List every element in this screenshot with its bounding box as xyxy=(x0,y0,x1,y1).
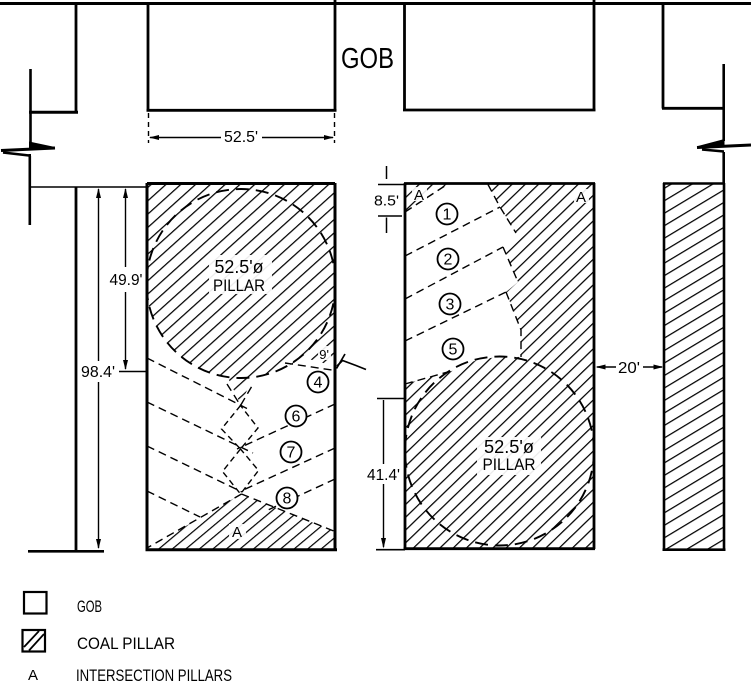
svg-text:PILLAR: PILLAR xyxy=(483,455,536,474)
svg-text:A: A xyxy=(232,524,242,541)
svg-text:98.4': 98.4' xyxy=(81,364,115,381)
svg-text:PILLAR: PILLAR xyxy=(213,276,265,295)
svg-text:GOB: GOB xyxy=(341,43,394,75)
svg-text:1: 1 xyxy=(443,207,452,224)
svg-text:3: 3 xyxy=(446,297,455,314)
svg-text:7: 7 xyxy=(287,445,296,462)
svg-text:6: 6 xyxy=(292,409,301,426)
svg-text:4: 4 xyxy=(314,375,323,392)
svg-text:52.5'ø: 52.5'ø xyxy=(215,257,264,277)
svg-text:GOB: GOB xyxy=(77,597,102,616)
svg-text:52.5': 52.5' xyxy=(224,129,258,146)
svg-text:52.5'ø: 52.5'ø xyxy=(484,437,534,457)
svg-text:20': 20' xyxy=(618,360,640,377)
svg-text:INTERSECTION PILLARS: INTERSECTION PILLARS xyxy=(76,666,232,685)
svg-text:8: 8 xyxy=(283,491,292,508)
svg-text:A: A xyxy=(28,667,38,684)
svg-text:2: 2 xyxy=(444,252,453,269)
svg-text:5: 5 xyxy=(449,342,458,359)
svg-text:8.5': 8.5' xyxy=(374,193,399,210)
svg-text:A: A xyxy=(414,187,424,204)
svg-text:COAL PILLAR: COAL PILLAR xyxy=(77,634,175,653)
svg-text:49.9': 49.9' xyxy=(110,272,143,289)
svg-text:9': 9' xyxy=(319,347,329,362)
svg-text:41.4': 41.4' xyxy=(367,467,400,484)
svg-text:A: A xyxy=(576,189,586,206)
